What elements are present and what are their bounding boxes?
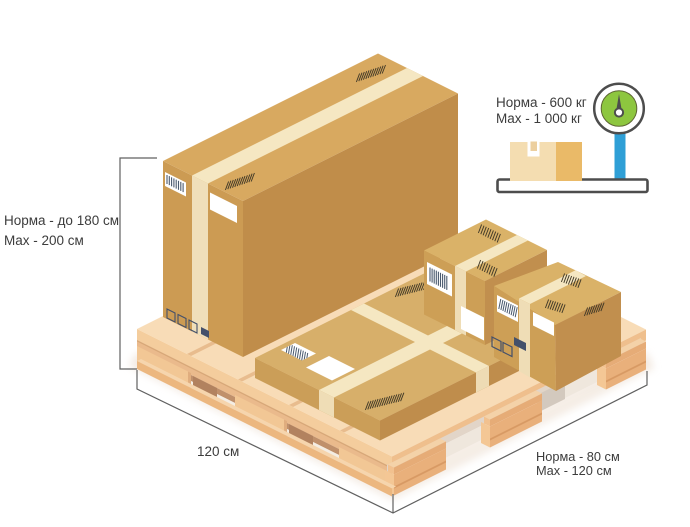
svg-text:Max - 120 см: Max - 120 см [536, 463, 612, 478]
svg-text:Норма - 600 кг: Норма - 600 кг [496, 95, 587, 110]
svg-text:120 см: 120 см [197, 444, 239, 459]
svg-text:Max - 200 см: Max - 200 см [4, 233, 84, 248]
svg-text:Норма - 80 см: Норма - 80 см [536, 449, 620, 464]
svg-text:Норма - до 180 см: Норма - до 180 см [4, 213, 119, 228]
svg-text:Max - 1 000 кг: Max - 1 000 кг [496, 111, 582, 126]
